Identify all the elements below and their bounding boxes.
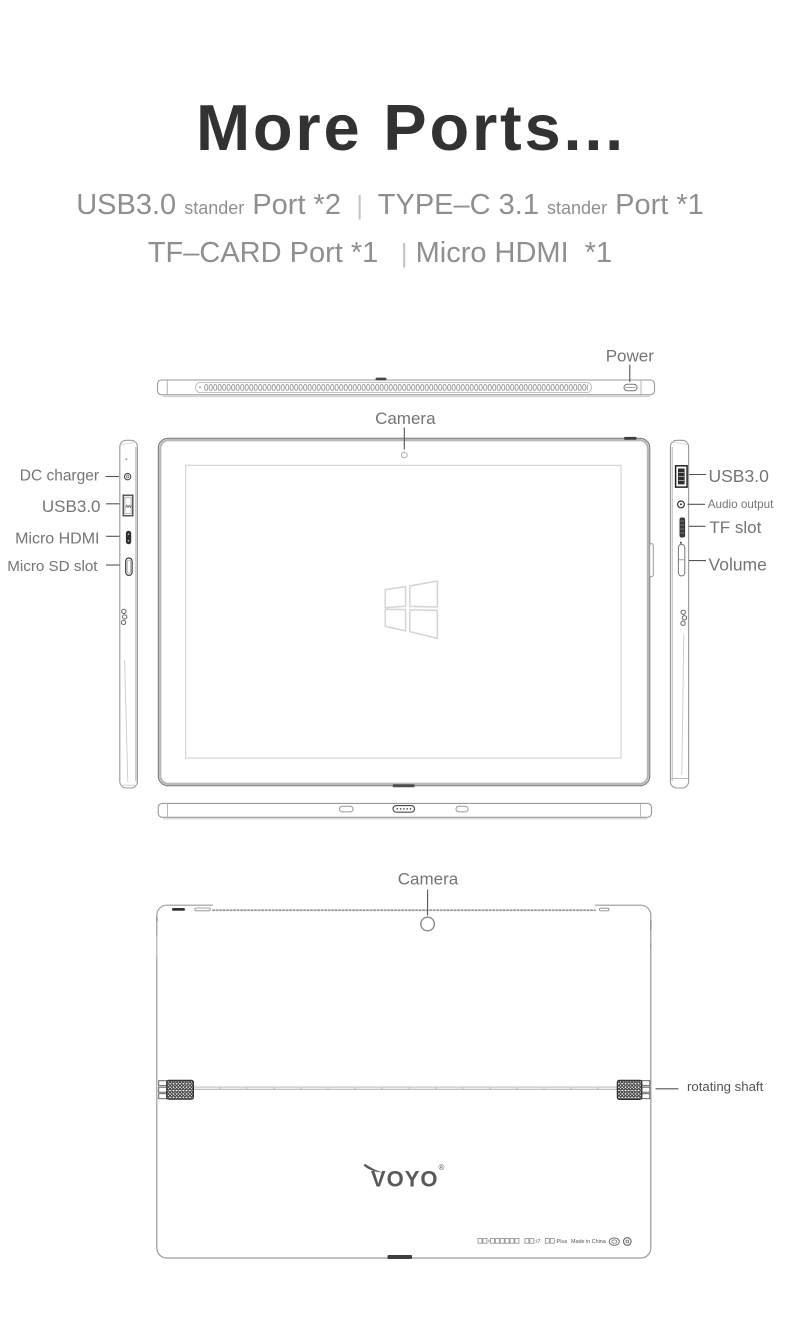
svg-text:Camera: Camera <box>398 870 459 889</box>
svg-text:USB3.0: USB3.0 <box>42 497 101 516</box>
svg-text:Audio output: Audio output <box>708 498 774 511</box>
svg-text:Made in China: Made in China <box>571 1239 606 1245</box>
svg-text:Micro HDMI: Micro HDMI <box>15 531 99 548</box>
svg-text:VOYO: VOYO <box>371 1167 439 1192</box>
svg-text::i7: :i7 <box>535 1239 541 1245</box>
svg-text:TF slot: TF slot <box>709 518 761 537</box>
svg-text:Power: Power <box>606 347 655 366</box>
svg-text:Camera: Camera <box>375 409 436 428</box>
svg-text::Plus: :Plus <box>555 1239 567 1245</box>
svg-text:DC charger: DC charger <box>20 468 99 485</box>
svg-text:rotating shaft: rotating shaft <box>687 1079 764 1094</box>
svg-text:®: ® <box>439 1163 445 1172</box>
svg-text:Micro SD slot: Micro SD slot <box>7 558 98 575</box>
svg-text:USB3.0: USB3.0 <box>709 466 770 486</box>
svg-text:Volume: Volume <box>709 554 767 574</box>
